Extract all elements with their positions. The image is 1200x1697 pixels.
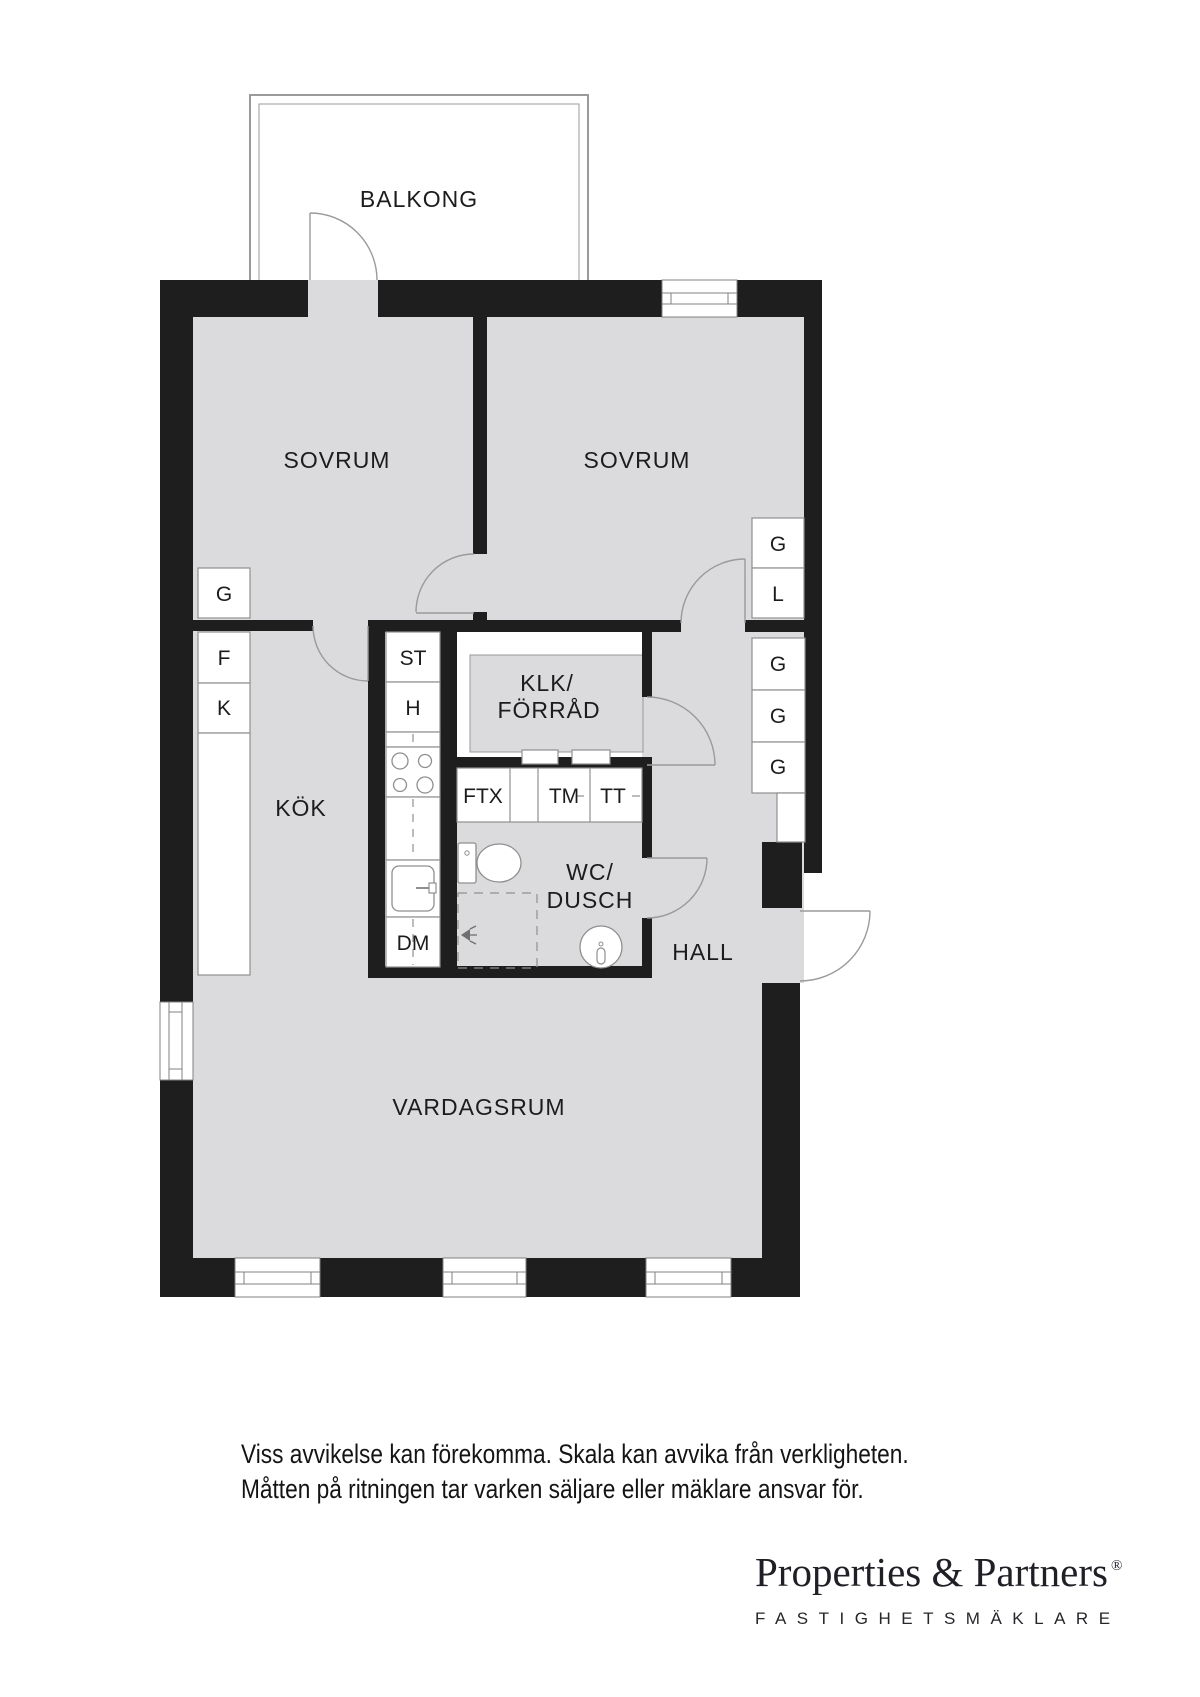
label-fridge: F <box>218 647 231 670</box>
room-label-living-room: VARDAGSRUM <box>392 1094 565 1120</box>
label-linen-cabinet: L <box>772 583 784 606</box>
label-dryer: TT <box>600 785 626 808</box>
room-label-kitchen: KÖK <box>275 795 327 821</box>
room-label-storage-line1: KLK/ <box>520 670 574 696</box>
registered-mark: ® <box>1111 1558 1122 1574</box>
window-bottom-2 <box>443 1258 526 1297</box>
room-label-storage-line2: FÖRRÅD <box>497 696 600 723</box>
label-wardrobe-hall-2: G <box>770 705 786 728</box>
room-label-bedroom-left: SOVRUM <box>284 447 391 473</box>
label-h-cabinet: H <box>405 697 420 720</box>
label-wardrobe-bedroom-left: G <box>216 583 232 606</box>
brand-tagline: FASTIGHETSMÄKLARE <box>755 1609 1122 1629</box>
room-label-wc-line1: WC/ <box>566 859 614 885</box>
disclaimer-line-1: Viss avvikelse kan förekomma. Skala kan … <box>241 1437 909 1472</box>
room-label-bedroom-right: SOVRUM <box>584 447 691 473</box>
label-dishwasher: DM <box>397 932 430 955</box>
room-label-balcony: BALKONG <box>360 186 478 212</box>
brand-name-text: Properties & Partners <box>755 1549 1108 1595</box>
room-label-wc-line2: DUSCH <box>547 887 634 913</box>
brand-logo: Properties & Partners® FASTIGHETSMÄKLARE <box>755 1551 1122 1629</box>
label-wardrobe-hall-1: G <box>770 653 786 676</box>
window-left <box>160 1002 193 1080</box>
label-wardrobe-hall-3: G <box>770 756 786 779</box>
window-bottom-3 <box>646 1258 731 1297</box>
window-bottom-1 <box>235 1258 320 1297</box>
disclaimer-line-2: Måtten på ritningen tar varken säljare e… <box>241 1472 909 1507</box>
room-label-hall: HALL <box>672 939 734 965</box>
sink-icon <box>392 866 436 911</box>
label-ftx-unit: FTX <box>463 785 503 808</box>
label-cleaning-cabinet: ST <box>400 647 427 670</box>
brand-wordmark: Properties & Partners® <box>755 1551 1122 1604</box>
label-washing-machine: TM <box>549 785 579 808</box>
label-freezer: K <box>217 697 231 720</box>
label-wardrobe-bedroom-right: G <box>770 533 786 556</box>
door-entry <box>800 911 870 981</box>
water-heater-icon <box>580 926 622 968</box>
disclaimer-text: Viss avvikelse kan förekomma. Skala kan … <box>241 1437 909 1507</box>
window-top <box>662 280 737 317</box>
toilet-icon <box>458 843 521 883</box>
